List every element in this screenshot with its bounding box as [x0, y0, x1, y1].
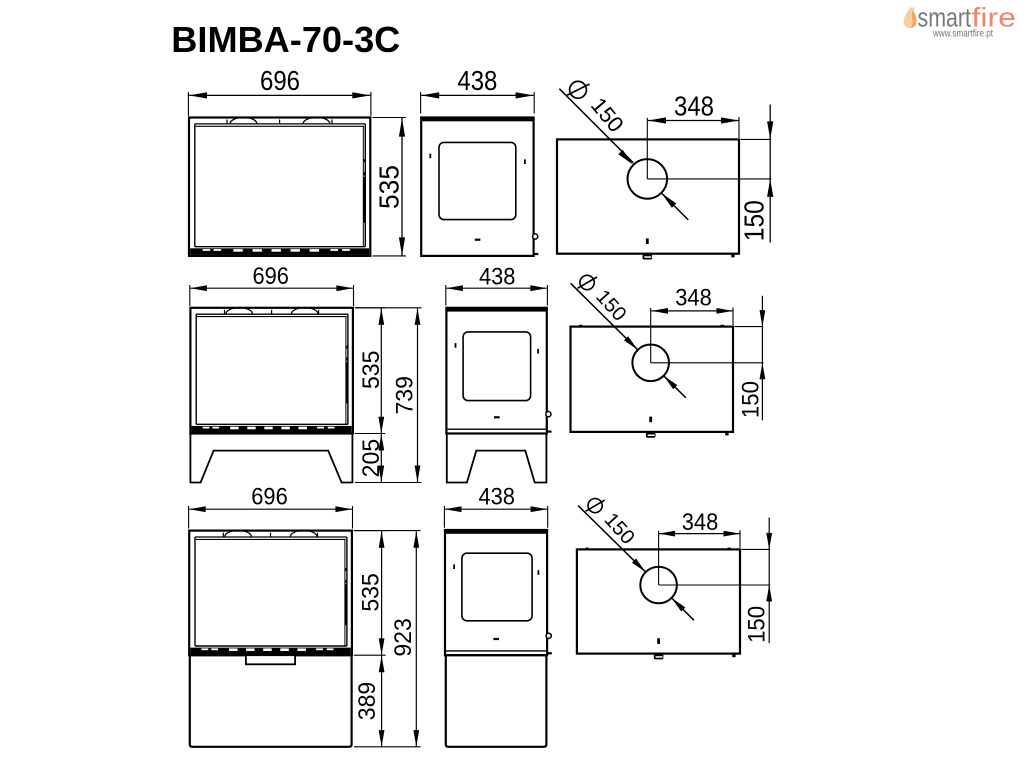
svg-text:923: 923 — [390, 618, 417, 657]
svg-text:150: 150 — [743, 606, 770, 643]
svg-text:BIMBA-70-3C: BIMBA-70-3C — [171, 20, 400, 60]
svg-text:www.smartfire.pt: www.smartfire.pt — [932, 28, 993, 39]
svg-text:348: 348 — [675, 284, 712, 311]
svg-text:535: 535 — [357, 573, 384, 612]
svg-text:348: 348 — [674, 91, 714, 122]
svg-text:150: 150 — [738, 381, 765, 418]
svg-text:438: 438 — [479, 263, 516, 290]
svg-text:696: 696 — [252, 263, 289, 290]
svg-text:438: 438 — [457, 65, 497, 96]
svg-text:535: 535 — [358, 351, 385, 390]
svg-text:389: 389 — [354, 682, 381, 721]
svg-text:696: 696 — [251, 483, 288, 510]
svg-text:205: 205 — [358, 439, 385, 478]
svg-text:535: 535 — [374, 165, 405, 209]
svg-text:696: 696 — [260, 65, 300, 96]
svg-text:438: 438 — [478, 483, 515, 510]
svg-text:150: 150 — [739, 200, 770, 241]
svg-text:739: 739 — [392, 376, 419, 415]
svg-text:348: 348 — [682, 509, 719, 536]
